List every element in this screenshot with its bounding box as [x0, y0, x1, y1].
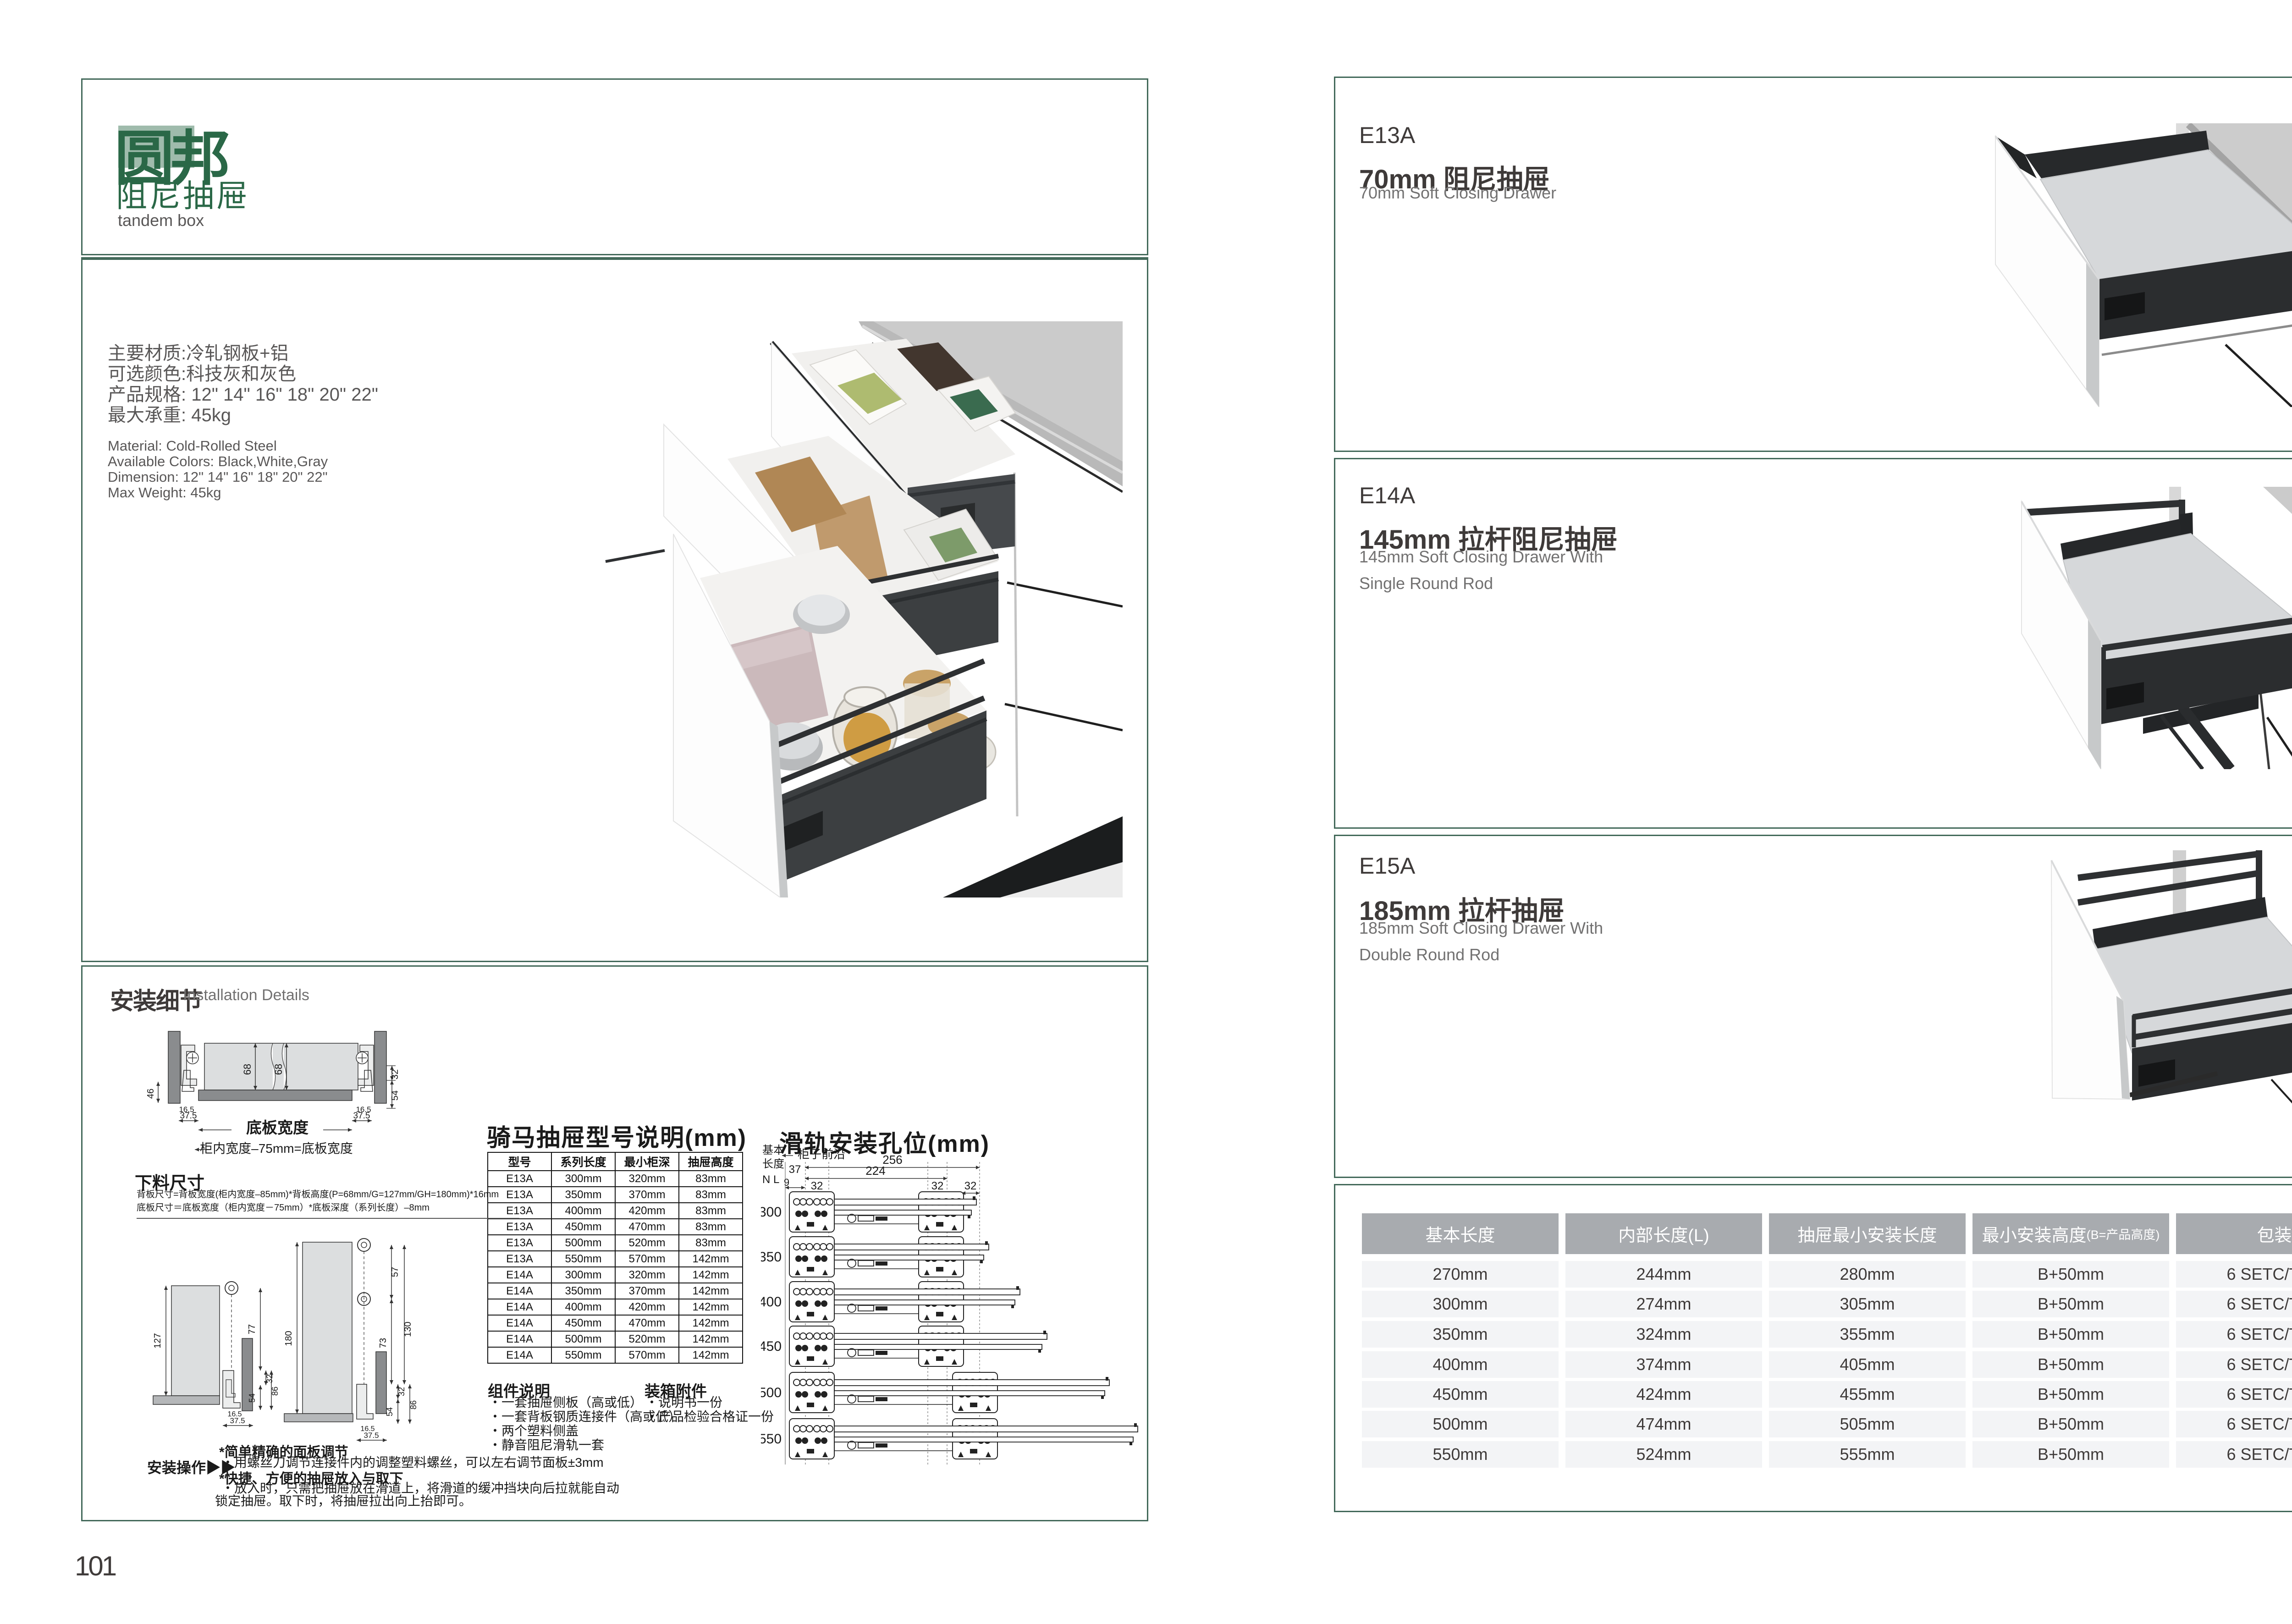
svg-text:73: 73 [378, 1338, 388, 1348]
svg-text:37.5: 37.5 [364, 1431, 379, 1440]
svg-text:32: 32 [931, 1180, 944, 1192]
svg-text:37.5: 37.5 [180, 1111, 197, 1121]
svg-text:127: 127 [153, 1333, 163, 1348]
svg-text:86: 86 [409, 1400, 418, 1409]
svg-text:46: 46 [146, 1089, 156, 1099]
svg-text:37.5: 37.5 [353, 1111, 370, 1121]
svg-text:32: 32 [265, 1374, 274, 1383]
svg-text:32: 32 [390, 1069, 400, 1079]
svg-text:32: 32 [811, 1180, 823, 1192]
svg-text:86: 86 [270, 1387, 280, 1396]
svg-text:550: 550 [761, 1431, 782, 1447]
svg-text:37: 37 [789, 1163, 801, 1176]
svg-text:57: 57 [390, 1267, 400, 1277]
svg-text:54: 54 [390, 1090, 400, 1101]
svg-text:68: 68 [273, 1064, 284, 1075]
svg-text:37.5: 37.5 [230, 1416, 245, 1425]
svg-text:68: 68 [242, 1064, 253, 1075]
svg-text:N L: N L [762, 1173, 779, 1186]
svg-text:32: 32 [964, 1180, 977, 1192]
svg-text:底板宽度: 底板宽度 [246, 1119, 309, 1137]
svg-text:400: 400 [761, 1294, 782, 1310]
svg-text:180: 180 [284, 1331, 294, 1346]
svg-text:9: 9 [784, 1177, 789, 1188]
svg-text:54: 54 [248, 1393, 257, 1403]
svg-text:224: 224 [865, 1164, 885, 1178]
svg-text:350: 350 [761, 1250, 782, 1265]
svg-text:300: 300 [761, 1205, 782, 1220]
svg-text:柜内宽度–75mm=底板宽度: 柜内宽度–75mm=底板宽度 [200, 1141, 353, 1156]
svg-text:长度: 长度 [762, 1158, 784, 1170]
svg-text:54: 54 [385, 1407, 394, 1416]
svg-text:130: 130 [403, 1321, 413, 1337]
svg-text:77: 77 [247, 1324, 257, 1334]
svg-text:32: 32 [397, 1387, 406, 1396]
svg-text:450: 450 [761, 1339, 782, 1354]
